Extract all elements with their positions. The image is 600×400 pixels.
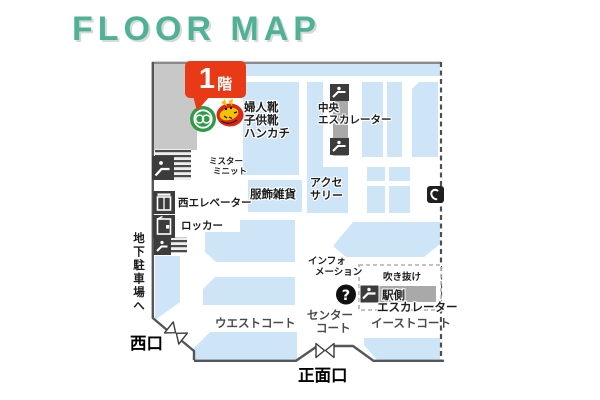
floor-suffix: 階 [217, 73, 232, 94]
area-label-fashion-goods: 服飾雑貨 [250, 186, 296, 202]
floor-number: 1 [199, 65, 215, 94]
facility-label-locker: ロッカー [181, 218, 223, 233]
court-label-west-court: ウエストコート [215, 315, 296, 331]
locker-icon [153, 215, 175, 238]
page-title: FLOOR MAP [72, 10, 321, 49]
floor-number-badge: 1 階 [185, 61, 246, 98]
area-label-womens-shoes: 婦人靴 子供靴 ハンカチ [244, 102, 290, 141]
court-label-center-court: センター コート [307, 310, 353, 336]
main-entrance-door-icon [316, 344, 334, 358]
facility-label-west-elevator: 西エレベーター [178, 195, 252, 210]
entrance-label-west-exit: 西口 [130, 330, 163, 354]
svg-text:?: ? [342, 288, 350, 304]
label-atrium: 吹き抜け [383, 269, 421, 283]
escalator-icon [330, 84, 349, 101]
facility-label-central-escalator: 中央 エスカレーター [318, 102, 392, 126]
court-label-east-court: イーストコート [371, 315, 451, 331]
facility-label-information: インフォ メーション [308, 256, 362, 278]
floor-map-page: FLOOR MAP [0, 0, 600, 400]
area-label-mister-minit: ミスター ミニット [209, 157, 247, 176]
floor-badge-pointer [193, 96, 210, 111]
elevator-icon [153, 191, 175, 214]
mascot-badge-icon [217, 99, 244, 127]
entrance-label-main-entrance: 正面口 [298, 362, 348, 386]
information-icon: ? [336, 285, 356, 305]
floor-map: ? [0, 0, 600, 400]
sign-underground-parking: 地下駐車場へ [130, 232, 146, 313]
escalator-icon [154, 238, 171, 255]
area-label-accessories: アクセ サリー [310, 177, 343, 202]
escalator-icon [152, 156, 174, 180]
facility-label-station-escalator-2: エスカレーター [377, 299, 458, 315]
west-entrance-door-icon [165, 322, 188, 344]
phone-icon [427, 186, 444, 203]
escalator-icon [330, 138, 349, 155]
